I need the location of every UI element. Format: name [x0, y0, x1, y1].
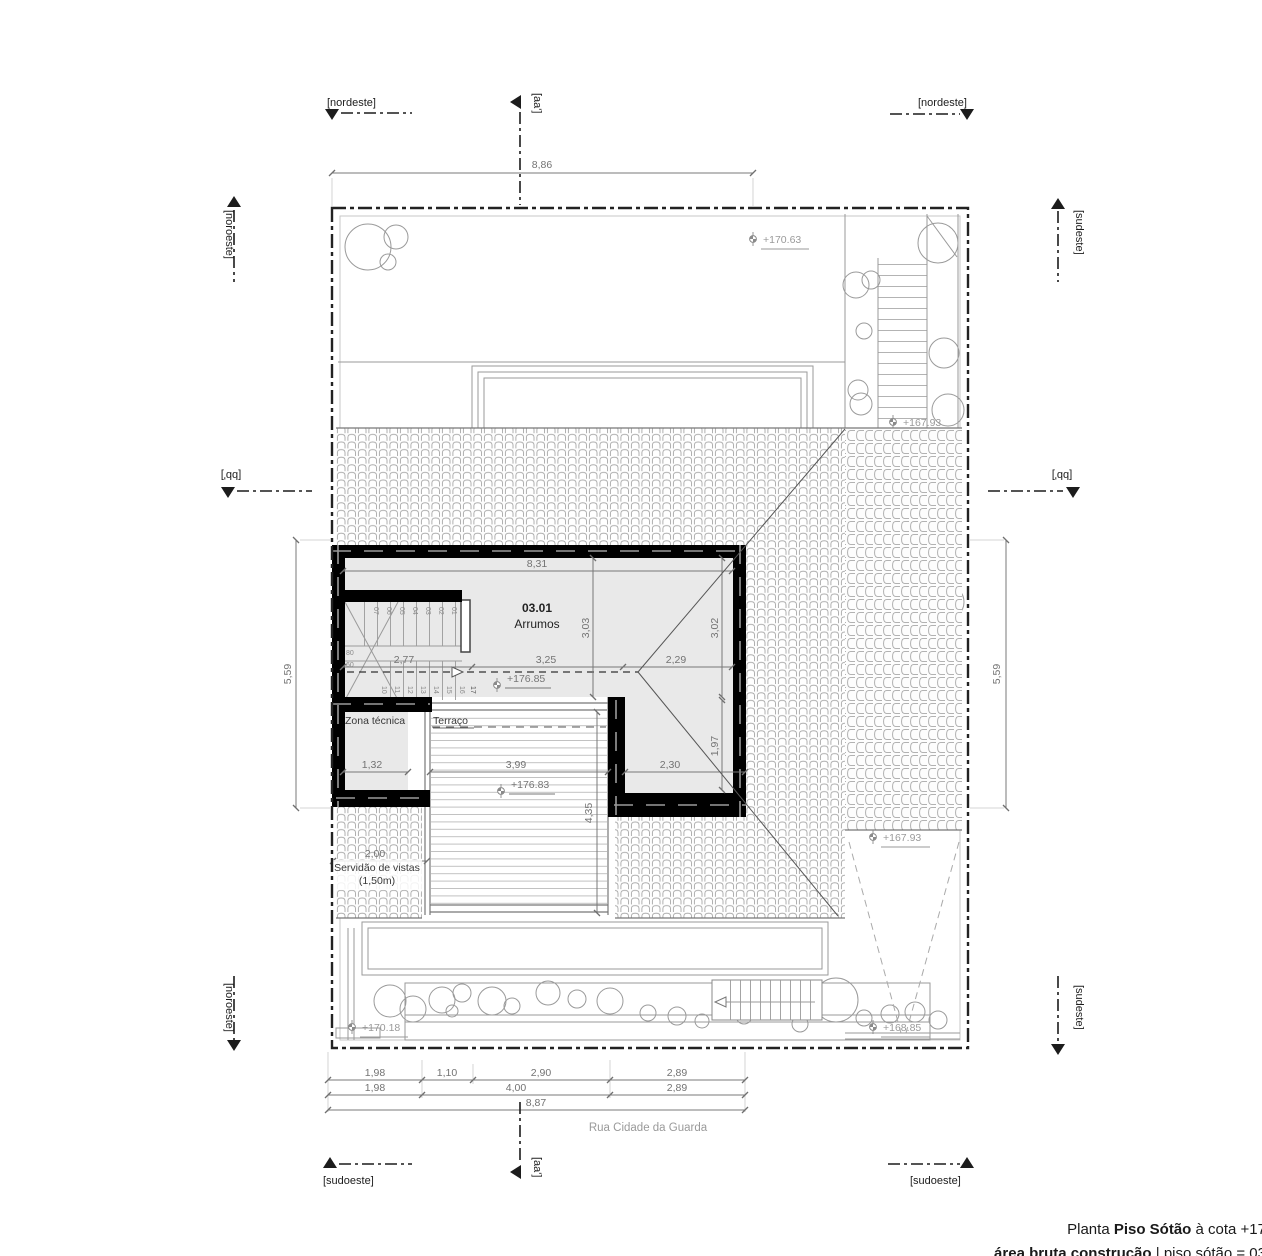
elevation-marker-icon: [750, 232, 757, 246]
section-marker-sudoeste-right: [sudoeste]: [888, 1157, 974, 1187]
elevation-roof-se: +167.93: [870, 830, 930, 847]
elevation-marker-icon: [870, 830, 877, 844]
roof-tile-band-top: [336, 428, 845, 545]
exterior-stair-south: [712, 980, 822, 1020]
svg-text:14: 14: [432, 686, 439, 694]
section-marker-bb-left: [bb']: [221, 469, 312, 498]
plan-title: Planta Piso Sótão à cota +17: [1067, 1221, 1262, 1238]
svg-text:2,89: 2,89: [667, 1082, 688, 1094]
dim-right-width: 2,29: [666, 654, 687, 666]
svg-text:01: 01: [450, 607, 457, 615]
elevation-garden-s: +168.85: [870, 1020, 930, 1037]
elevation-value: +176.85: [507, 673, 545, 685]
dim-side-right: 5,59: [991, 664, 1003, 685]
svg-text:17: 17: [469, 686, 476, 694]
label-terraco: Terraço: [433, 715, 468, 727]
skylight-outline: [472, 366, 813, 430]
section-arrow-icon: [323, 1157, 337, 1168]
dim-stair-width: 2,77: [394, 654, 415, 666]
servidao-line1: Servidão de vistas: [334, 862, 420, 874]
section-arrow-icon: [1066, 487, 1080, 498]
section-marker-sudeste-top: [sudeste]: [1051, 198, 1085, 282]
elevation-value: +170.63: [763, 234, 801, 246]
dim-terrace-width: 3,99: [506, 759, 527, 771]
dim-lower-right-h: 1,97: [709, 736, 721, 757]
section-marker-aa-bottom: [aa']: [510, 1102, 543, 1179]
section-arrow-icon: [1051, 1044, 1065, 1055]
svg-text:12: 12: [406, 686, 413, 694]
svg-text:11: 11: [393, 686, 400, 693]
dim-mid-width: 3,25: [536, 654, 557, 666]
section-marker-noroeste-top: [noroeste]: [223, 196, 241, 282]
room-number: 03.01: [522, 601, 552, 615]
svg-text:06: 06: [385, 607, 392, 615]
section-marker-sudeste-bottom: [sudeste]: [1051, 976, 1085, 1055]
svg-text:[noroeste]: [noroeste]: [223, 983, 235, 1032]
svg-text:[aa']: [aa']: [531, 93, 543, 113]
dim-servidao: 2,00: [365, 848, 386, 860]
elevation-garden-ne: +170.63: [750, 232, 809, 249]
dim-room-h-right: 3,02: [709, 618, 721, 639]
dim-zona-width: 1,32: [362, 759, 383, 771]
ramp-dashed: [845, 842, 960, 1039]
svg-text:[sudeste]: [sudeste]: [1073, 210, 1085, 255]
svg-text:[bb']: [bb']: [1052, 469, 1072, 481]
svg-text:07: 07: [372, 607, 379, 615]
svg-text:8,87: 8,87: [526, 1097, 547, 1109]
svg-text:16: 16: [458, 686, 465, 694]
svg-text:[sudeste]: [sudeste]: [1073, 985, 1085, 1030]
plan-area-note: área bruta construção | piso sótão = 03: [994, 1245, 1262, 1256]
svg-text:4,00: 4,00: [506, 1082, 527, 1094]
section-marker-noroeste-bottom: [noroeste]: [223, 976, 241, 1051]
elevation-value: +168.85: [883, 1022, 921, 1034]
section-arrow-icon: [960, 109, 974, 120]
label-zona-tecnica: Zona técnica: [345, 715, 405, 727]
svg-text:05: 05: [398, 607, 405, 615]
section-marker-bb-right: [bb']: [988, 469, 1080, 498]
lower-terrace-inner: [368, 928, 822, 969]
svg-text:1,98: 1,98: [365, 1082, 386, 1094]
section-arrow-icon: [510, 1165, 521, 1179]
svg-text:[nordeste]: [nordeste]: [327, 97, 376, 109]
section-marker-nordeste-left: [nordeste]: [325, 97, 412, 120]
dim-side-left: 5,59: [282, 664, 294, 685]
section-arrow-icon: [227, 1040, 241, 1051]
svg-text:02: 02: [437, 607, 444, 615]
stair-width-80: 80: [346, 650, 354, 657]
roof-tile-south: [615, 817, 845, 918]
svg-text:2,90: 2,90: [531, 1067, 552, 1079]
dim-top-width: 8,86: [532, 159, 553, 171]
section-arrow-icon: [1051, 198, 1065, 209]
floor-plan-page: +170.63 +167.93 +167.93: [0, 0, 1262, 1256]
svg-text:04: 04: [411, 607, 418, 615]
section-arrow-icon: [510, 95, 521, 109]
section-arrow-icon: [227, 196, 241, 207]
title-block: Planta Piso Sótão à cota +17 área bruta …: [994, 1221, 1262, 1256]
roof-tile-east: [746, 545, 845, 817]
bottom-dim-total: 8,87: [328, 1097, 745, 1110]
section-marker-aa-top: [aa']: [510, 93, 543, 205]
dim-room-width: 8,31: [527, 558, 548, 570]
bottom-dim-row1: 1,98 1,10 2,90 2,89: [328, 1067, 745, 1080]
svg-text:[bb']: [bb']: [221, 469, 241, 481]
servidao-note: Servidão de vistas (1,50m): [332, 860, 422, 890]
tree-icon: [345, 224, 408, 270]
svg-text:[sudoeste]: [sudoeste]: [323, 1175, 374, 1187]
svg-text:1,98: 1,98: [365, 1067, 386, 1079]
dim-room-h-mid: 3,03: [580, 618, 592, 639]
section-arrow-icon: [325, 109, 339, 120]
stair-handrail: [461, 600, 470, 652]
svg-text:10: 10: [380, 686, 387, 694]
svg-text:1,10: 1,10: [437, 1067, 458, 1079]
svg-text:13: 13: [419, 686, 426, 694]
section-marker-nordeste-right: [nordeste]: [890, 97, 974, 120]
elevation-value: +167.93: [903, 417, 941, 429]
svg-text:2,89: 2,89: [667, 1067, 688, 1079]
section-arrow-icon: [960, 1157, 974, 1168]
elevation-value: +170.18: [362, 1022, 400, 1034]
svg-text:[aa']: [aa']: [531, 1157, 543, 1177]
roof-tile-strip-east: [845, 428, 962, 830]
svg-text:[sudoeste]: [sudoeste]: [910, 1175, 961, 1187]
bottom-dim-row2: 1,98 4,00 2,89: [328, 1082, 745, 1095]
servidao-line2: (1,50m): [359, 875, 395, 887]
svg-text:03: 03: [424, 607, 431, 615]
elevation-value: +176.83: [511, 779, 549, 791]
stair-width-60: 60: [346, 662, 354, 669]
planter-outline: [405, 983, 930, 1040]
dim-lower-right-w: 2,30: [660, 759, 681, 771]
svg-text:[nordeste]: [nordeste]: [918, 97, 967, 109]
svg-text:15: 15: [445, 686, 452, 694]
elevation-value: +167.93: [883, 832, 921, 844]
shrubs-south: [374, 978, 947, 1032]
room-name: Arrumos: [514, 617, 559, 631]
floor-plan-canvas: +170.63 +167.93 +167.93: [0, 0, 1262, 1256]
street-name: Rua Cidade da Guarda: [589, 1122, 708, 1134]
lower-terrace-outline: [362, 922, 828, 975]
section-marker-sudoeste-left: [sudoeste]: [323, 1157, 412, 1187]
section-arrow-icon: [221, 487, 235, 498]
dim-terrace-height: 4,35: [583, 803, 595, 824]
